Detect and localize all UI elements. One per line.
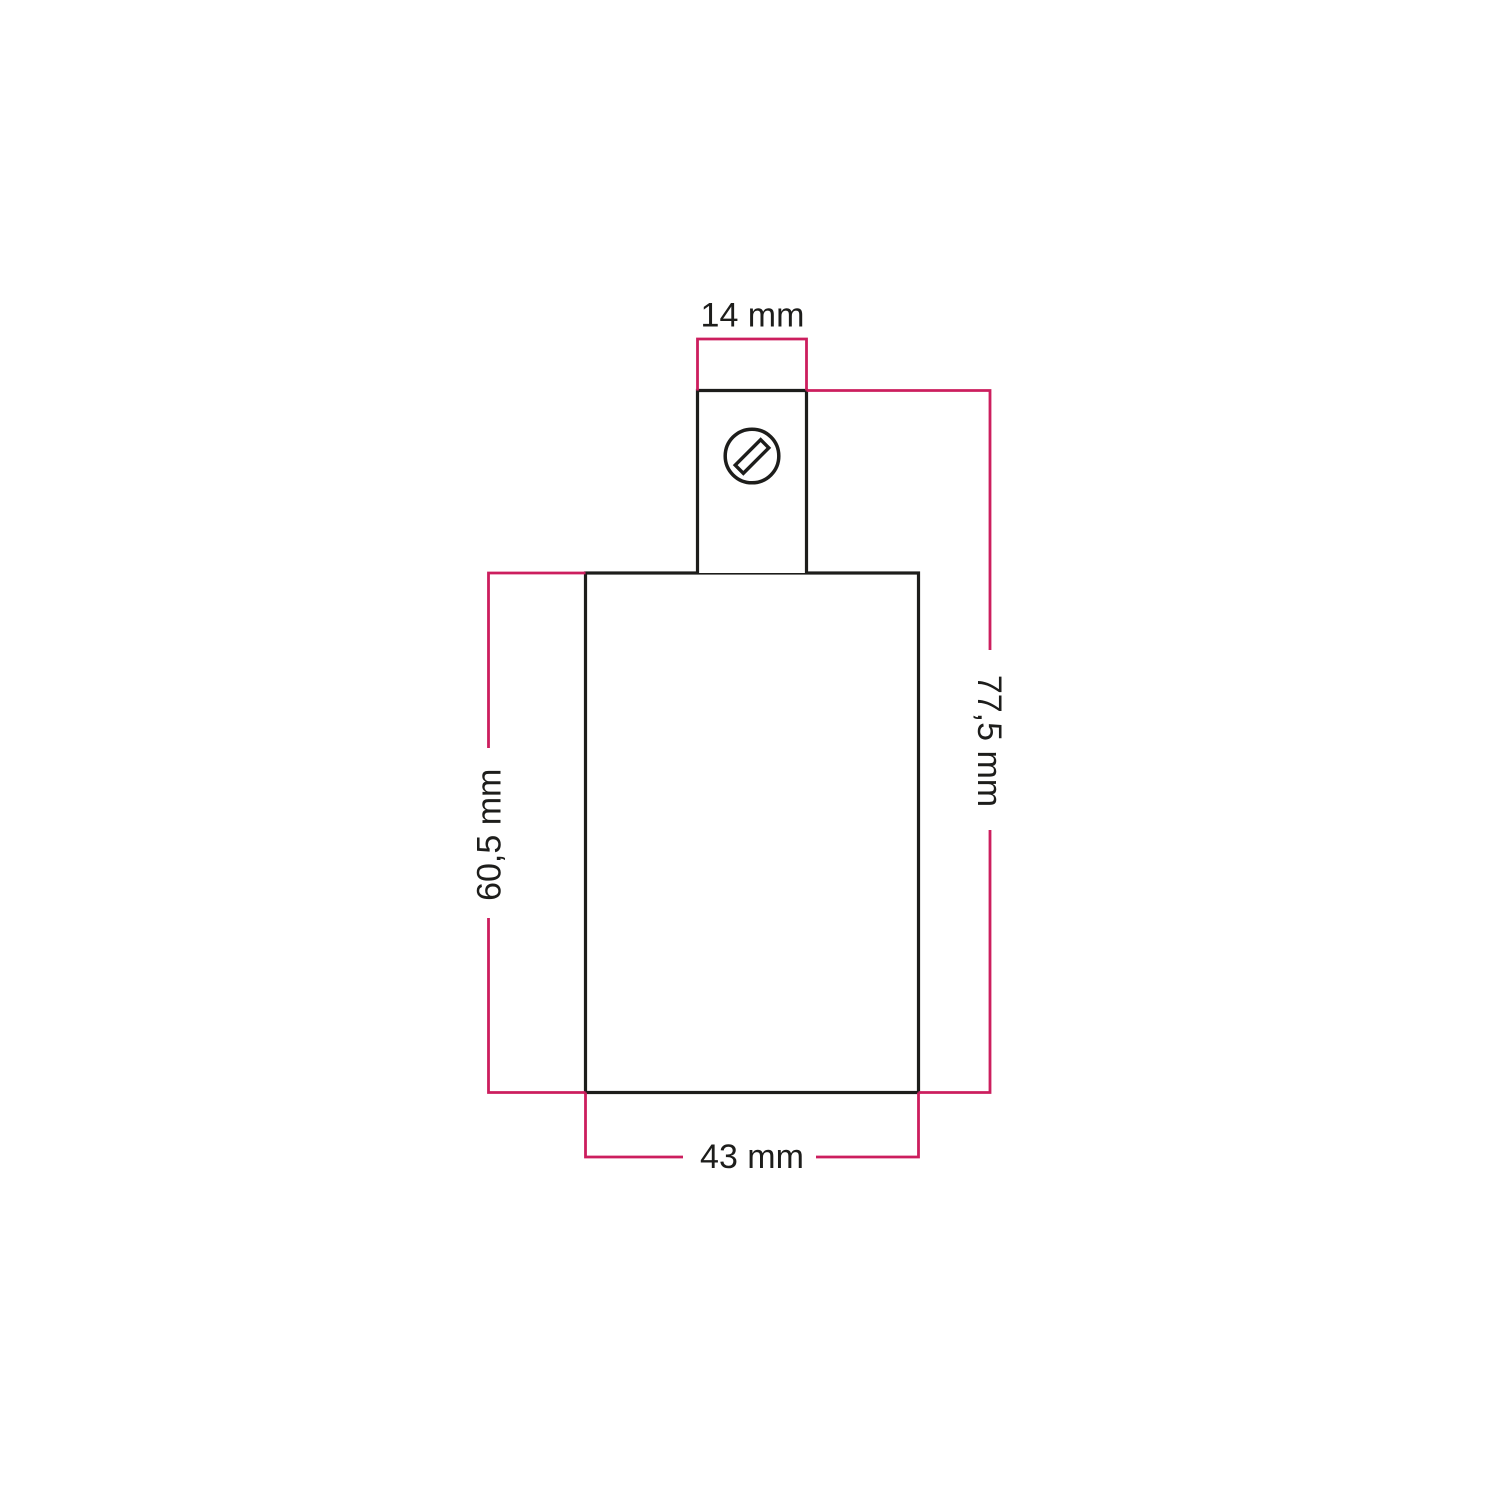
svg-text:60,5 mm: 60,5 mm [470, 769, 508, 901]
svg-text:43 mm: 43 mm [700, 1138, 804, 1176]
svg-text:14 mm: 14 mm [701, 297, 805, 335]
svg-text:77,5 mm: 77,5 mm [970, 675, 1008, 807]
